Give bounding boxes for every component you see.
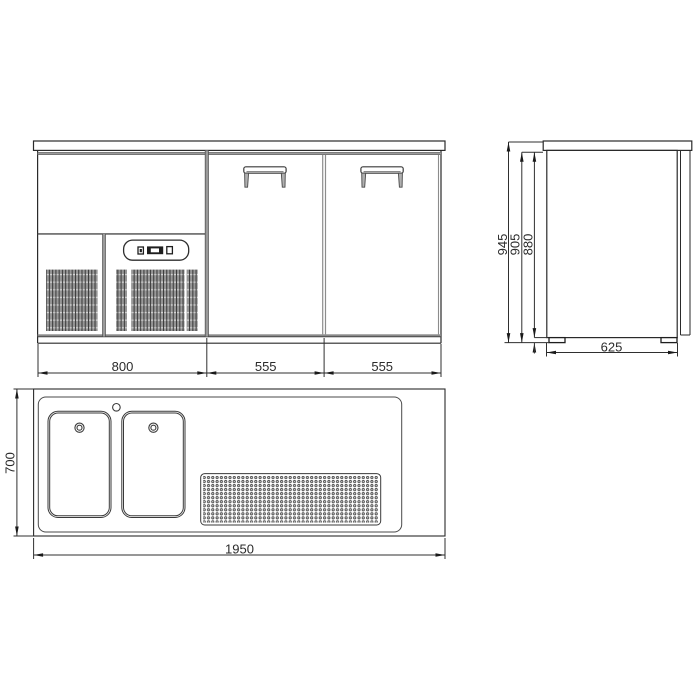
svg-text:555: 555 [371,359,393,374]
svg-text:880: 880 [521,234,536,256]
svg-text:700: 700 [3,452,18,474]
svg-text:555: 555 [255,359,277,374]
svg-text:1950: 1950 [225,542,254,557]
svg-text:625: 625 [601,340,623,355]
svg-text:800: 800 [112,359,134,374]
